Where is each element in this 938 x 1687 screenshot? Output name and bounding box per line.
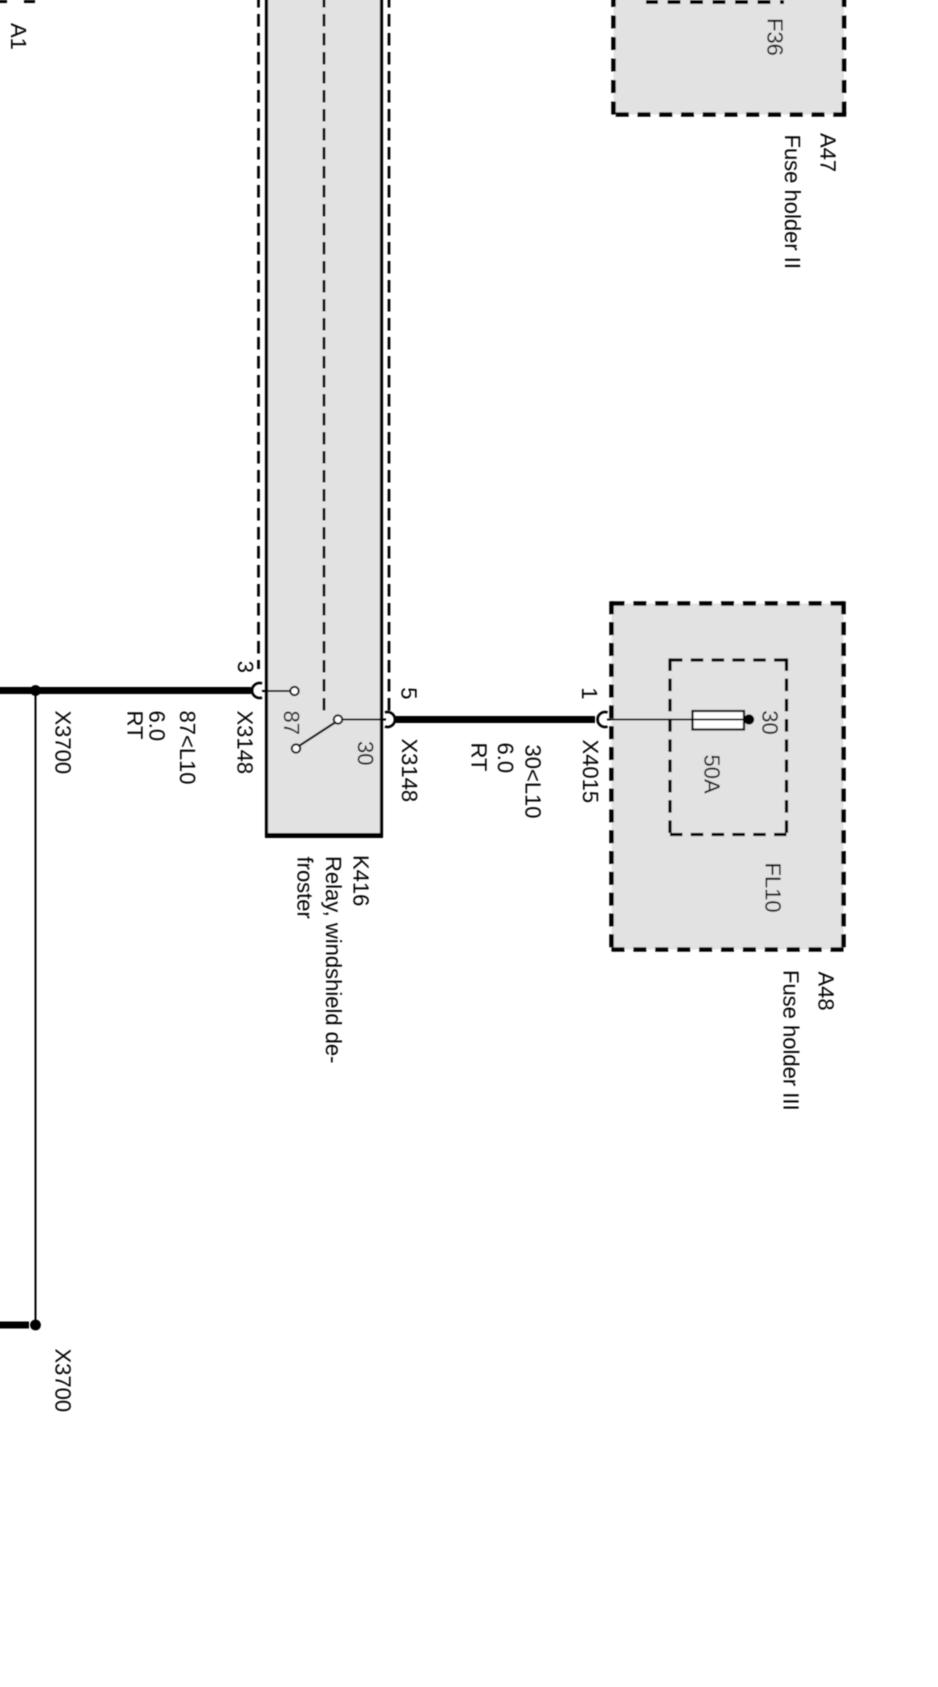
svg-text:RT: RT (467, 743, 492, 772)
svg-text:froster: froster (293, 857, 318, 919)
svg-text:K416: K416 (349, 855, 374, 906)
svg-text:A1: A1 (6, 23, 31, 50)
svg-text:X3700: X3700 (51, 711, 76, 775)
svg-text:F36: F36 (763, 18, 788, 56)
svg-text:3: 3 (233, 661, 258, 673)
svg-text:X3148: X3148 (397, 739, 422, 803)
svg-text:A48: A48 (814, 972, 839, 1011)
svg-text:X3148: X3148 (233, 711, 258, 775)
svg-text:X4015: X4015 (578, 740, 603, 804)
svg-text:50A: 50A (700, 755, 725, 794)
svg-text:RT: RT (123, 711, 148, 740)
svg-text:87<L10: 87<L10 (175, 711, 200, 785)
svg-text:X3700: X3700 (51, 1349, 76, 1413)
svg-text:Fuse holder III: Fuse holder III (779, 970, 804, 1111)
svg-text:Relay, windshield de-: Relay, windshield de- (321, 856, 346, 1063)
svg-text:30: 30 (758, 710, 783, 734)
svg-text:Fuse holder II: Fuse holder II (780, 135, 805, 270)
svg-text:5: 5 (397, 687, 422, 699)
svg-text:87: 87 (279, 711, 304, 735)
svg-text:1: 1 (577, 687, 602, 699)
svg-text:30<L10: 30<L10 (521, 745, 546, 819)
svg-text:6.0: 6.0 (493, 743, 518, 774)
svg-text:30: 30 (353, 741, 378, 765)
svg-text:FL10: FL10 (761, 863, 786, 913)
svg-text:A47: A47 (816, 133, 841, 172)
